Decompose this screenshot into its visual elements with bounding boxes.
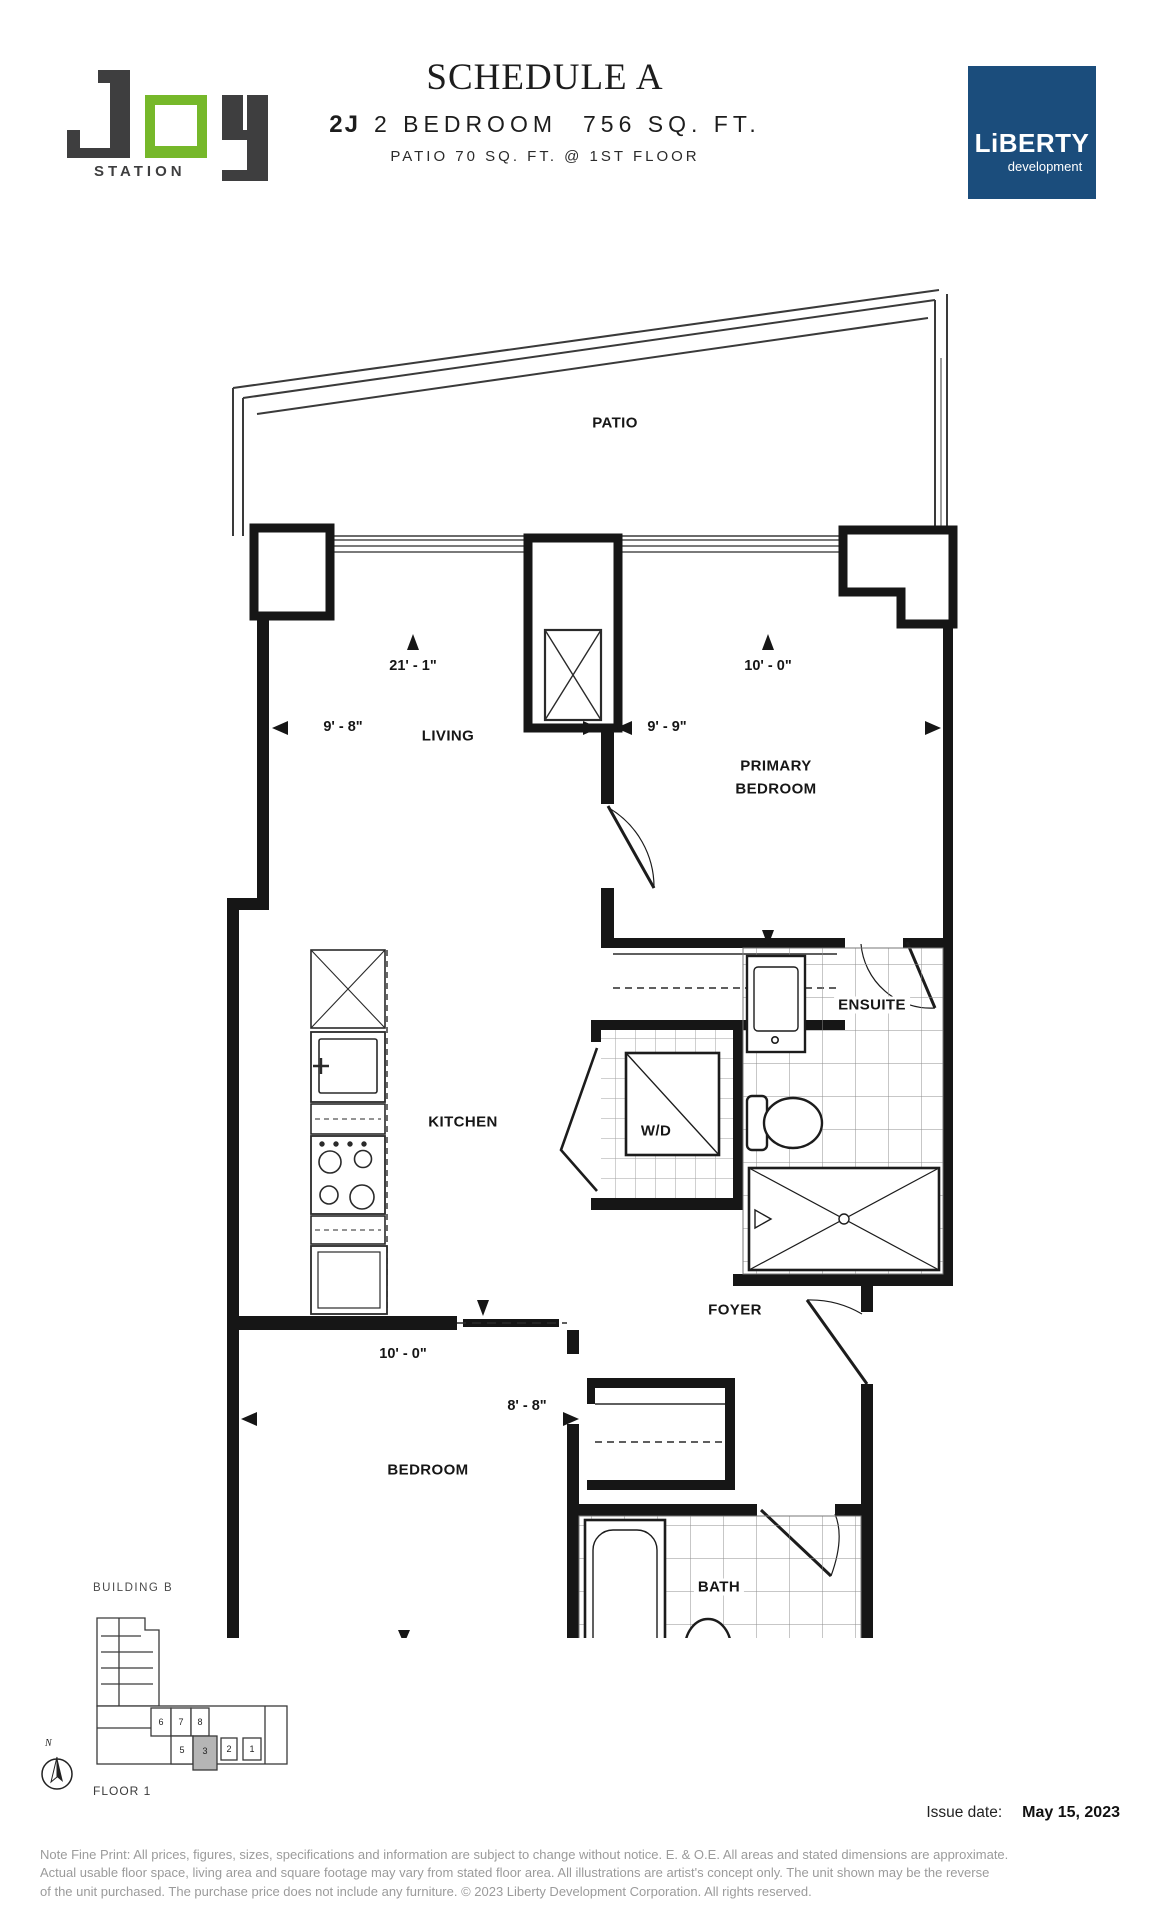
- keyplan-unit-3: 3: [202, 1746, 207, 1756]
- room-label-living: LIVING: [422, 728, 474, 745]
- fine-print-line-3: of the unit purchased. The purchase pric…: [40, 1883, 1134, 1901]
- compass-icon: [42, 1757, 72, 1789]
- liberty-name: LiBERTY: [968, 128, 1096, 159]
- logo-station-text: STATION: [94, 163, 186, 180]
- liberty-development-logo: LiBERTY development: [968, 66, 1096, 199]
- unit-code: 2J: [329, 111, 360, 138]
- keyplan-unit-6: 6: [158, 1717, 163, 1727]
- floorplan-sheet: STATION SCHEDULE A 2J2 BEDROOM756 SQ. FT…: [0, 0, 1166, 1920]
- room-label-ensuite: ENSUITE: [834, 997, 910, 1014]
- fine-print-line-2: Actual usable floor space, living area a…: [40, 1864, 1134, 1882]
- foyer-closet: [595, 1404, 725, 1442]
- dim-primary-width: 10' - 0": [744, 658, 791, 674]
- keyplan-unit-8: 8: [197, 1717, 202, 1727]
- dim-bedroom-depth: 8' - 8": [507, 1398, 546, 1414]
- dim-bedroom-width: 10' - 0": [379, 1346, 426, 1362]
- dim-living-width: 21' - 1": [389, 658, 436, 674]
- floor-plan: PATIO LIVING PRIMARY BEDROOM KITCHEN W/D…: [195, 238, 965, 1638]
- issue-date-row: Issue date: May 15, 2023: [926, 1804, 1120, 1822]
- issue-date-value: May 15, 2023: [1022, 1804, 1120, 1822]
- room-label-patio: PATIO: [592, 415, 638, 432]
- floor-plan-drawing: [195, 238, 965, 1638]
- keyplan-building-label: BUILDING B: [93, 1582, 173, 1594]
- joy-station-logo: STATION: [58, 56, 283, 191]
- unit-type: 2 BEDROOM: [374, 111, 557, 137]
- keyplan-unit-5: 5: [179, 1745, 184, 1755]
- unit-summary: 2J2 BEDROOM756 SQ. FT.: [320, 111, 770, 139]
- keyplan-drawing: [35, 1578, 315, 1813]
- schedule-title: SCHEDULE A: [320, 56, 770, 99]
- issue-date-label: Issue date:: [926, 1804, 1002, 1822]
- fine-print: Note Fine Print: All prices, figures, si…: [40, 1846, 1134, 1901]
- keyplan-floor-label: FLOOR 1: [93, 1784, 151, 1798]
- kitchen-fixtures: [311, 950, 387, 1314]
- key-plan: BUILDING B N 6 7: [35, 1578, 315, 1813]
- keyplan-unit-7: 7: [178, 1717, 183, 1727]
- sheet-title-block: SCHEDULE A 2J2 BEDROOM756 SQ. FT. PATIO …: [320, 56, 770, 165]
- fine-print-line-1: Note Fine Print: All prices, figures, si…: [40, 1846, 1134, 1864]
- room-label-primary-bedroom: PRIMARY BEDROOM: [706, 756, 846, 801]
- dim-primary-depth: 9' - 9": [647, 719, 686, 735]
- patio-area-line: PATIO 70 SQ. FT. @ 1ST FLOOR: [320, 148, 770, 165]
- dim-living-depth: 9' - 8": [323, 719, 362, 735]
- keyplan-unit-2: 2: [226, 1744, 231, 1754]
- room-label-bedroom: BEDROOM: [387, 1462, 468, 1479]
- patio-outline: [233, 290, 947, 536]
- compass-north-label: N: [45, 1738, 52, 1749]
- room-label-bath: BATH: [694, 1579, 744, 1596]
- room-label-kitchen: KITCHEN: [428, 1114, 497, 1131]
- washer-dryer: [626, 1053, 719, 1155]
- room-label-wd: W/D: [641, 1123, 671, 1140]
- unit-area: 756 SQ. FT.: [583, 111, 761, 137]
- liberty-tagline: development: [994, 159, 1096, 174]
- room-label-foyer: FOYER: [708, 1302, 762, 1319]
- keyplan-unit-1: 1: [249, 1744, 254, 1754]
